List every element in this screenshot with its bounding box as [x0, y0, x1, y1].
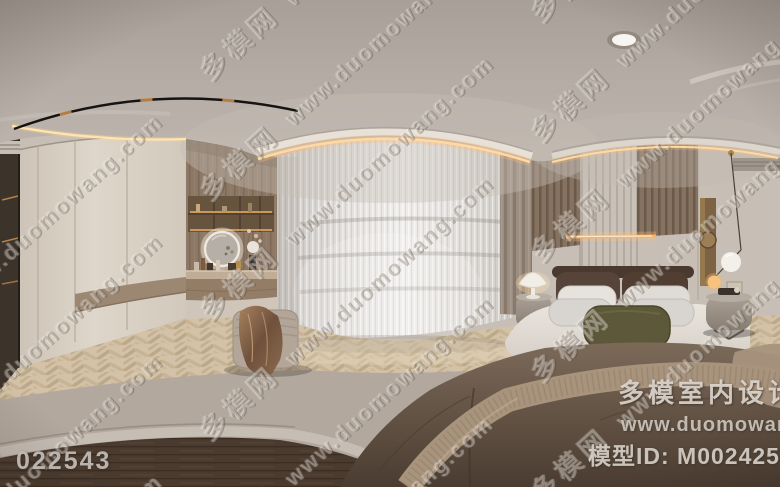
- model-id-watermark: 模型ID: M0024258: [588, 445, 780, 468]
- panorama-bedroom-render: 多模网www.duomowang.com多模网www.duomowang.com…: [0, 0, 780, 487]
- brand-watermark: 多模室内设计 www.duomowang.com 模型ID: M0024258: [588, 380, 780, 468]
- photo-id-watermark: 022543: [16, 447, 111, 476]
- brand-watermark-cn: 多模室内设计: [618, 380, 780, 406]
- brand-watermark-url: www.duomowang.com: [621, 415, 780, 435]
